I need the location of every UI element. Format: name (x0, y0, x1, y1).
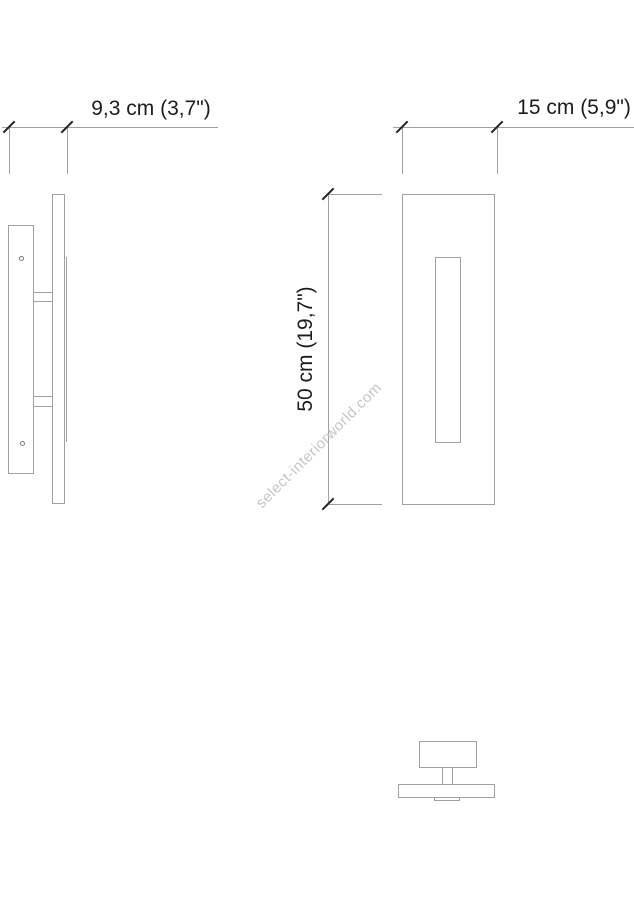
width-dimension-label: 15 cm (5,9") (512, 96, 634, 120)
top-view-wall-plate (419, 741, 477, 768)
top-view-lamp-bar (398, 784, 495, 798)
height-extension-line-bottom (328, 504, 382, 505)
side-view-mount-arm-lower (33, 396, 52, 407)
top-view-stem (442, 767, 453, 785)
screw-dot-top (19, 256, 24, 261)
width-dimension-line (393, 127, 634, 128)
screw-dot-bottom (20, 441, 25, 446)
height-dimension-line (328, 194, 329, 505)
side-view-lamp-panel (52, 194, 65, 504)
width-extension-line-left (402, 127, 403, 174)
side-view-diffuser-edge-line (66, 257, 67, 442)
height-dimension-label: 50 cm (19,7") (294, 274, 318, 424)
technical-drawing-canvas: 9,3 cm (3,7") 15 cm (5,9") 50 cm (19,7")… (0, 0, 634, 900)
width-extension-line-right (497, 127, 498, 174)
depth-dimension-label: 9,3 cm (3,7") (89, 97, 213, 121)
depth-dimension-line (2, 127, 218, 128)
front-view-light-slot (435, 257, 461, 443)
height-extension-line-top (328, 194, 382, 195)
side-view-mount-arm-upper (33, 292, 52, 302)
depth-extension-line-left (9, 127, 10, 174)
top-view-diffuser-tab (434, 797, 460, 801)
side-view-wall-plate (8, 225, 34, 474)
depth-extension-line-right (67, 127, 68, 174)
